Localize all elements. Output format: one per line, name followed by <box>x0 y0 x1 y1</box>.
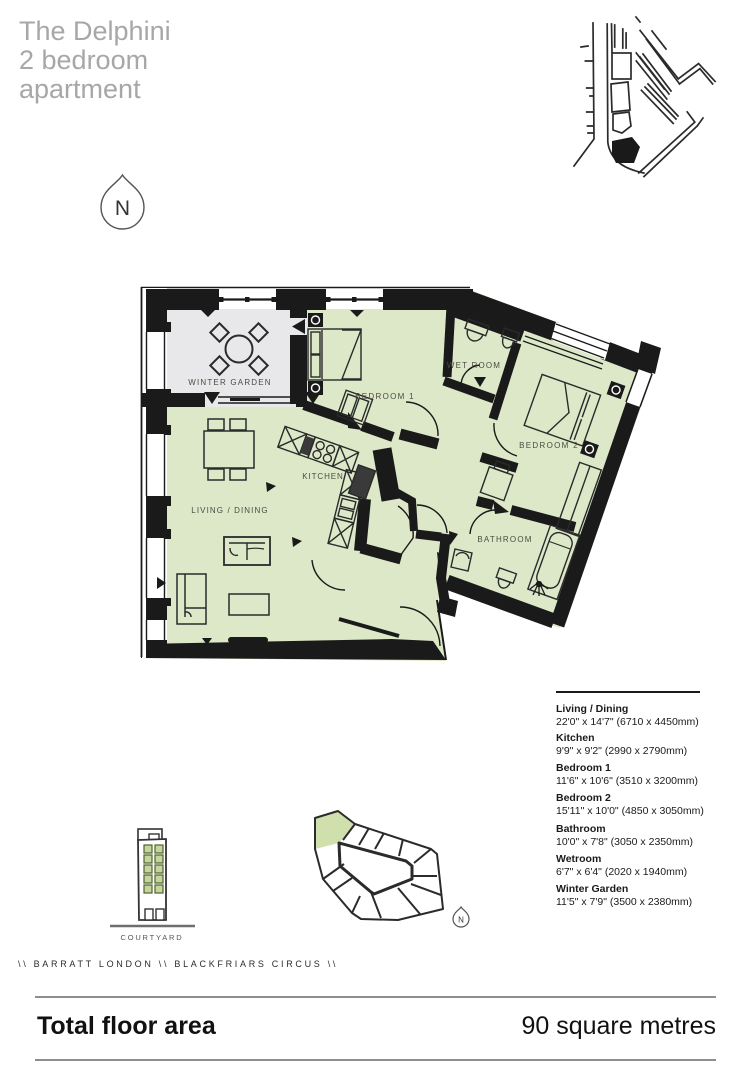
svg-text:2 bedroom: 2 bedroom <box>19 45 148 75</box>
svg-text:WET ROOM: WET ROOM <box>447 361 501 370</box>
svg-text:Bathroom: Bathroom <box>556 823 606 835</box>
svg-text:LIVING / DINING: LIVING / DINING <box>191 506 268 515</box>
svg-text:Total floor area: Total floor area <box>37 1012 217 1040</box>
svg-text:Bedroom 1: Bedroom 1 <box>556 762 611 774</box>
svg-text:BEDROOM 1: BEDROOM 1 <box>355 392 415 401</box>
svg-text:22'0" x 14'7" (6710 x 4450mm): 22'0" x 14'7" (6710 x 4450mm) <box>556 716 699 728</box>
svg-text:90 square metres: 90 square metres <box>521 1012 716 1040</box>
svg-text:11'6" x 10'6" (3510 x 3200mm): 11'6" x 10'6" (3510 x 3200mm) <box>556 775 698 787</box>
svg-text:10'0" x 7'8" (3050 x 2350mm): 10'0" x 7'8" (3050 x 2350mm) <box>556 836 693 848</box>
svg-text:9'9" x 9'2" (2990 x 2790mm): 9'9" x 9'2" (2990 x 2790mm) <box>556 745 687 757</box>
svg-text:Kitchen: Kitchen <box>556 732 595 744</box>
svg-text:apartment: apartment <box>19 74 141 104</box>
svg-text:Bedroom 2: Bedroom 2 <box>556 792 611 804</box>
svg-text:Wetroom: Wetroom <box>556 853 601 865</box>
svg-text:6'7" x 6'4" (2020 x 1940mm): 6'7" x 6'4" (2020 x 1940mm) <box>556 866 687 878</box>
svg-text:The Delphini: The Delphini <box>19 16 171 46</box>
svg-text:BATHROOM: BATHROOM <box>477 535 532 544</box>
svg-text:15'11" x 10'0" (4850 x 3050mm): 15'11" x 10'0" (4850 x 3050mm) <box>556 805 704 817</box>
svg-text:N: N <box>458 916 464 925</box>
svg-text:BEDROOM 2: BEDROOM 2 <box>519 441 579 450</box>
svg-text:KITCHEN: KITCHEN <box>302 472 343 481</box>
svg-text:N: N <box>115 197 130 220</box>
svg-text:WINTER GARDEN: WINTER GARDEN <box>188 378 272 387</box>
svg-text:Living / Dining: Living / Dining <box>556 703 628 715</box>
svg-text:11'5" x 7'9" (3500 x 2380mm): 11'5" x 7'9" (3500 x 2380mm) <box>556 896 692 908</box>
svg-text:COURTYARD: COURTYARD <box>120 933 183 942</box>
svg-text:\\ BARRATT LONDON \\ BLACKFRIA: \\ BARRATT LONDON \\ BLACKFRIARS CIRCUS … <box>18 959 338 969</box>
svg-text:Winter Garden: Winter Garden <box>556 883 628 895</box>
